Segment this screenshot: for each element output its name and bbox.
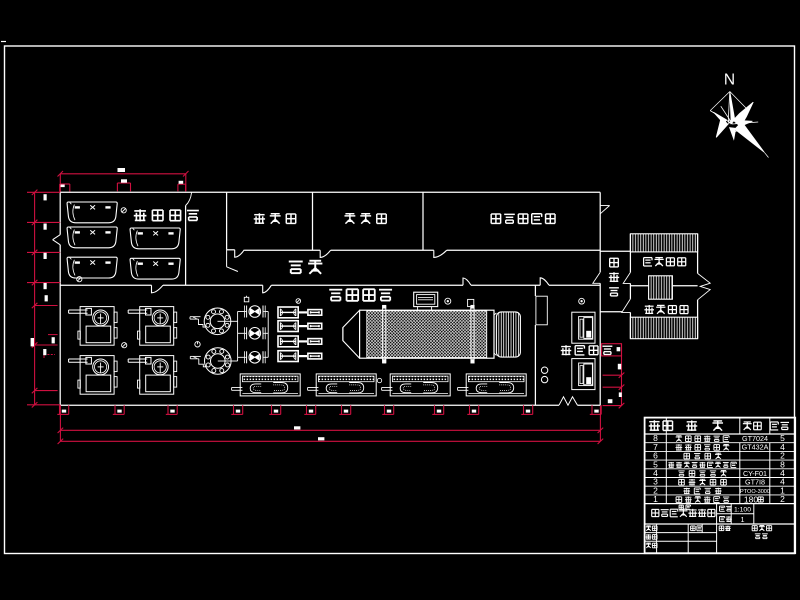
svg-text:GT7024: GT7024	[742, 434, 768, 443]
svg-text:GT7I8: GT7I8	[745, 478, 765, 487]
svg-text:1: 1	[741, 515, 745, 524]
svg-text:CY-F01: CY-F01	[743, 469, 767, 478]
svg-text:GT432A: GT432A	[742, 443, 769, 452]
svg-text:1:100: 1:100	[734, 507, 751, 514]
svg-text:N: N	[724, 72, 735, 89]
svg-text:1: 1	[653, 494, 658, 504]
svg-text:2: 2	[780, 494, 785, 504]
svg-text:180: 180	[744, 494, 758, 504]
